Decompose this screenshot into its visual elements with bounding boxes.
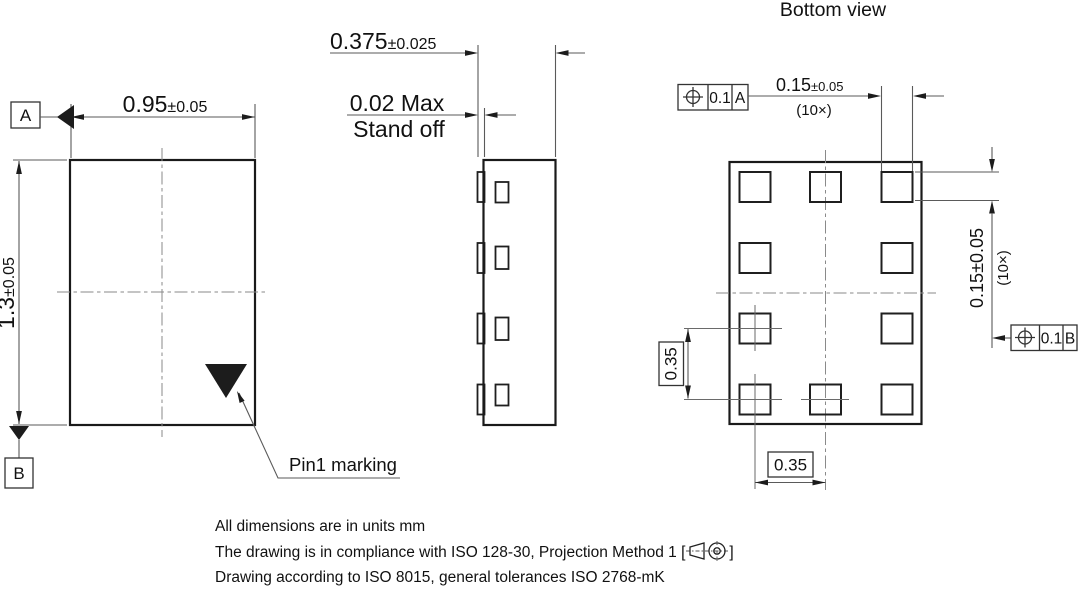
bottom-view: Bottom view (659, 0, 1077, 490)
side-pad-4 (496, 385, 509, 406)
arrowhead (16, 411, 22, 424)
arrowhead (989, 201, 995, 214)
position-symbol-icon (683, 87, 703, 107)
bottom-view-title: Bottom view (780, 0, 887, 21)
pad-r4c3 (882, 385, 913, 415)
drawing-canvas: 0.95±0.05 1.3±0.05 A B (0, 0, 1080, 595)
side-view-body-outline (484, 160, 556, 425)
datum-a-label: A (20, 106, 32, 125)
standoff-text-line1: 0.02 Max (350, 90, 445, 116)
pitch-y-dimension: 0.35 (659, 329, 691, 399)
fcf-a-datum: A (735, 90, 746, 107)
pad-r1c3 (882, 172, 913, 202)
standoff-dimension: 0.02 Max Stand off (347, 90, 516, 157)
arrowhead (16, 161, 22, 174)
arrowhead (556, 50, 569, 56)
arrowhead (813, 480, 826, 486)
side-pad-2 (496, 247, 509, 270)
fcf-a-tolerance: 0.1 (709, 90, 731, 107)
front-height-dimension: 1.3±0.05 (0, 160, 67, 425)
datum-a: A (11, 102, 74, 129)
pad-height-dimension: 0.15±0.05 (10×) (915, 147, 1012, 348)
pad-width-dim-count: (10×) (796, 102, 831, 119)
side-view: 0.375±0.025 0.02 Max Stand off (330, 28, 585, 425)
pitch-y-value: 0.35 (662, 347, 681, 380)
note-units: All dimensions are in units mm (215, 514, 734, 540)
pad-r2c3 (882, 243, 913, 273)
pin1-marking: Pin1 marking (205, 364, 400, 478)
pad-r3c3 (882, 314, 913, 344)
fcf-position-b: 0.1 B (992, 325, 1077, 351)
datum-b: B (5, 426, 33, 488)
arrowhead (868, 93, 881, 99)
arrowhead (465, 50, 478, 56)
arrowhead (913, 93, 926, 99)
pitch-x-dimension: 0.35 (755, 452, 826, 485)
arrowhead (755, 480, 768, 486)
arrowhead (989, 159, 995, 172)
datum-b-label: B (13, 464, 24, 483)
note-tolerances: Drawing according to ISO 8015, general t… (215, 565, 734, 591)
front-width-dimension: 0.95±0.05 (71, 91, 255, 158)
side-thickness-dim-text: 0.375±0.025 (330, 28, 436, 54)
front-view: 0.95±0.05 1.3±0.05 A B (0, 91, 400, 488)
package-outline-drawing: 0.95±0.05 1.3±0.05 A B (0, 0, 1080, 595)
front-height-dim-text: 1.3±0.05 (0, 257, 19, 329)
first-angle-projection-icon (686, 540, 728, 562)
fcf-position-a: 0.1 A (678, 85, 748, 111)
standoff-text-line2: Stand off (353, 116, 445, 142)
datum-a-triangle-icon (57, 105, 74, 129)
pad-crosshairs (684, 305, 849, 489)
arrowhead (485, 112, 498, 118)
pad-r2c1 (740, 243, 771, 273)
pitch-x-value: 0.35 (774, 456, 807, 475)
pad-width-dimension: 0.15±0.05 (10×) (748, 75, 944, 171)
arrowhead (685, 386, 691, 399)
arrowhead (992, 335, 1005, 341)
fcf-b-tolerance: 0.1 (1041, 331, 1063, 348)
front-width-dim-text: 0.95±0.05 (123, 91, 208, 117)
arrowhead (237, 391, 245, 403)
arrowhead (465, 112, 478, 118)
note-projection: The drawing is in compliance with ISO 12… (215, 540, 734, 566)
position-symbol-icon (1015, 328, 1035, 348)
pad-height-dim-text: 0.15±0.05 (967, 228, 987, 308)
pin1-triangle-icon (205, 364, 247, 398)
arrowhead (685, 329, 691, 342)
drawing-notes: All dimensions are in units mm The drawi… (215, 514, 734, 591)
side-pad-3 (496, 318, 509, 341)
pad-height-dim-count: (10×) (995, 250, 1012, 285)
arrowhead (242, 114, 255, 120)
fcf-b-datum: B (1065, 331, 1075, 348)
pad-r1c1 (740, 172, 771, 202)
pin1-label: Pin1 marking (289, 454, 397, 475)
side-pad-1 (496, 182, 509, 203)
pad-width-dim-text: 0.15±0.05 (776, 75, 843, 95)
datum-b-triangle-icon (9, 426, 29, 440)
